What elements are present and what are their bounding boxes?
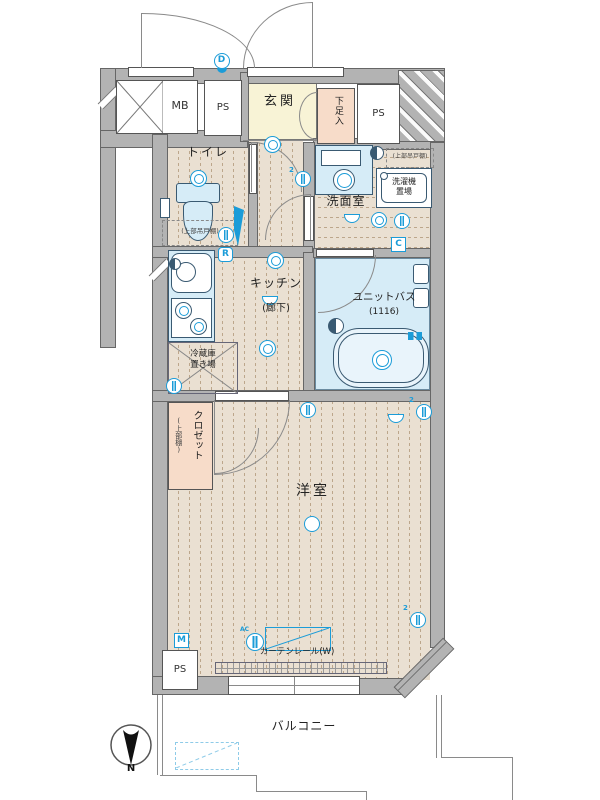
marker-c: C [391,237,406,252]
ps-box-2: PS [357,84,400,144]
mb-door-arc [142,13,255,68]
shoe-box: 下足入 [317,88,355,144]
room-outlet-count-3: 2 [403,604,408,612]
mb-door-leaf [141,13,142,68]
washer-box: 洗濯機 置場 [376,168,432,208]
marker-r: R [218,247,233,262]
vanity-bowl [333,169,355,191]
balcony-edge-5 [442,757,512,758]
toilet-door-leaf [251,142,252,192]
washroom-light-symbol [371,212,387,228]
washer-label-line1: 洗濯機 [392,177,416,186]
balcony-label: バルコニー [262,720,346,733]
bath-faucet-symbol [408,332,422,340]
balcony-edge-2 [256,775,257,791]
ps-label-1: PS [205,102,241,113]
entry-door-leaf [312,2,313,68]
marker-d: D [214,53,230,69]
entry-door-sill [247,67,344,77]
ps-box-1: PS [204,80,242,136]
compass-north-label: N [124,763,138,774]
fridge-label-line1: 冷蔵庫 [190,349,216,359]
balcony-edge-1 [160,775,256,776]
stove-burner-1 [175,302,192,319]
mb-label: MB [163,100,197,112]
kitchen-sub-label: (廊下) [245,303,307,314]
balcony-edge-6 [512,757,513,800]
marker-d-letter: D [215,56,228,66]
room-outlet-symbol-1 [300,402,316,418]
stove-burner-2 [190,318,207,335]
entry-door-arc [243,2,313,68]
ps-label-3: PS [163,664,197,675]
room-switch-symbol [304,516,320,532]
closet-label: クロゼット [191,410,202,460]
bath-drain-symbol [372,350,392,370]
curtain-rail-label: カーテンレール(W) [242,648,352,657]
toilet-label: トイレ [176,146,240,159]
toilet-outlet-symbol [218,227,234,243]
room-outlet-count-2: 2 [409,396,414,404]
wall-bath-left [303,252,315,398]
fridge-label: 冷蔵庫 置き場 [169,349,237,371]
genkan-label: 玄関 [250,95,310,109]
genkan-light-symbol [264,136,281,153]
room-outlet-symbol-3 [410,612,426,628]
balcony-edge-4 [366,791,367,800]
outdoor-unit-diagonal [176,743,237,768]
toilet-light-symbol [190,170,207,187]
vanity-counter [321,150,361,166]
hall-outlet-symbol [295,171,311,187]
hall-outlet-count: 2 [289,166,294,174]
closet-box: クロゼット (上部棚) [168,402,213,490]
mb-box: MB [116,80,198,134]
compass-needle-icon [109,723,153,767]
washroom-label: 洗面室 [316,195,376,208]
wall-unit-left [152,134,168,695]
washer-label: 洗濯機 置場 [377,177,431,197]
fridge-outlet-symbol [166,378,182,394]
ac-space-diagonal [266,628,329,649]
bath-label: ユニットバス [342,292,426,304]
outdoor-unit-space [175,742,239,770]
mb-door-sill [128,67,194,77]
kitchen-light-symbol-2 [259,340,276,357]
ac-marker-label: AC [240,626,249,633]
room-outlet-symbol-2 [416,404,432,420]
bath-shelf-1 [413,264,429,284]
ps-label-2: PS [358,108,399,119]
washer-faucet-symbol [370,146,384,160]
fridge-label-line2: 置き場 [190,360,216,370]
washroom-shelf-label: (上部吊戸棚) [387,154,433,161]
ps-box-3: PS [162,650,198,690]
balcony-wall-right [436,695,442,758]
room-label: 洋室 [283,484,343,499]
washer-label-line2: 置場 [396,187,412,196]
bath-valve-symbol [328,318,344,334]
balcony-edge-3 [256,791,366,792]
balcony-divider-left [157,695,163,775]
kitchen-label: キッチン [245,277,307,290]
curtain-rail-band [215,662,387,674]
compass [109,723,153,767]
shoe-box-label: 下足入 [332,96,342,126]
washroom-shelf-box: (上部吊戸棚) [386,148,434,168]
washroom-outlet-symbol [394,213,410,229]
wall-right [430,142,445,648]
window-center-tick [294,677,295,694]
bath-size-label: (1116) [342,308,426,318]
stairs-hatch [398,70,445,142]
kitchen-light-symbol-1 [267,252,284,269]
wall-left-outer [100,68,116,348]
washroom-door-leaf [310,194,311,240]
marker-m: M [174,633,189,648]
kitchen-faucet-symbol [169,258,181,270]
toilet-paper-holder [160,198,170,218]
mb-x-lines [117,81,163,133]
floor-plan: MB PS 下足入 PS PS (上部吊戸棚) (上部吊戸棚) [0,0,600,800]
closet-sub-label: (上部棚) [174,417,182,454]
balcony-window [228,676,360,695]
